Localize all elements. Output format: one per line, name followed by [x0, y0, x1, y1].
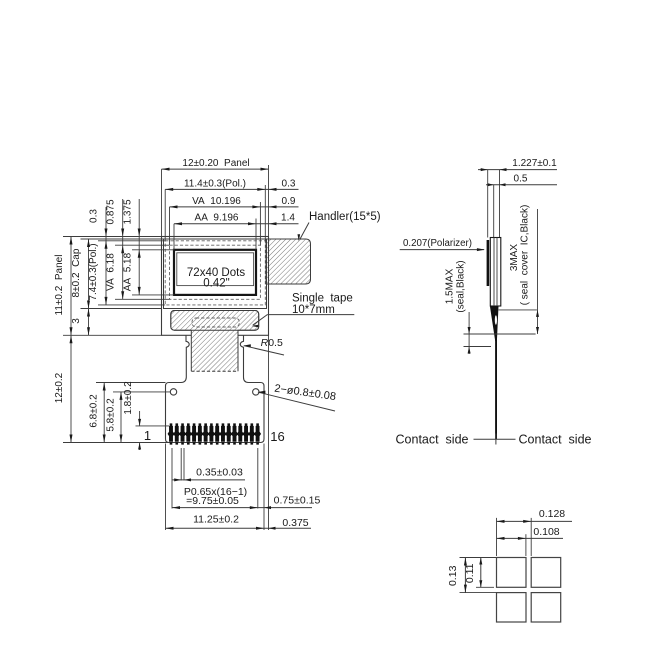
svg-text:VA 10.196: VA 10.196: [192, 196, 241, 207]
svg-text:11.25±0.2: 11.25±0.2: [193, 514, 239, 526]
svg-text:12±0.2: 12±0.2: [54, 372, 65, 403]
svg-text:5.8±0.2: 5.8±0.2: [106, 398, 117, 432]
svg-text:R0.5: R0.5: [261, 337, 283, 349]
svg-text:( seal cover IC,Black): ( seal cover IC,Black): [520, 205, 531, 306]
svg-text:0.3: 0.3: [282, 178, 296, 189]
svg-text:7.4±0.3(Pol.): 7.4±0.3(Pol.): [88, 243, 99, 300]
svg-text:11±0.2 Panel: 11±0.2 Panel: [54, 255, 65, 316]
svg-text:1.5MAX: 1.5MAX: [445, 268, 456, 304]
svg-text:0.108: 0.108: [533, 526, 559, 538]
svg-text:0.375: 0.375: [282, 517, 308, 529]
svg-text:16: 16: [270, 429, 284, 444]
svg-text:=9.75±0.05: =9.75±0.05: [186, 495, 239, 507]
svg-text:1.4: 1.4: [281, 213, 295, 224]
svg-text:3MAX: 3MAX: [509, 244, 520, 272]
svg-text:0.75±0.15: 0.75±0.15: [274, 495, 321, 507]
svg-text:(seal,Black): (seal,Black): [456, 260, 467, 312]
svg-text:Contact side: Contact side: [519, 432, 592, 446]
svg-text:0.128: 0.128: [539, 508, 565, 520]
svg-text:1.8±0.2: 1.8±0.2: [123, 381, 134, 415]
svg-text:AA 9.196: AA 9.196: [195, 213, 239, 224]
svg-text:0.875: 0.875: [106, 199, 117, 224]
svg-text:0.207(Polarizer): 0.207(Polarizer): [403, 238, 472, 249]
svg-text:0.5: 0.5: [514, 174, 528, 185]
svg-text:8±0.2 Cap: 8±0.2 Cap: [71, 248, 82, 297]
svg-text:Contact side: Contact side: [396, 432, 469, 446]
svg-text:12±0.20 Panel: 12±0.20 Panel: [182, 158, 249, 169]
svg-text:VA 6.18: VA 6.18: [106, 253, 117, 291]
svg-text:0.35±0.03: 0.35±0.03: [196, 466, 243, 478]
svg-text:3: 3: [71, 318, 82, 324]
svg-text:11.4±0.3(Pol.): 11.4±0.3(Pol.): [184, 178, 246, 189]
svg-text:1: 1: [144, 428, 151, 443]
svg-text:Handler(15*5): Handler(15*5): [309, 211, 381, 223]
svg-text:1.227±0.1: 1.227±0.1: [512, 158, 557, 169]
svg-text:0.9: 0.9: [282, 196, 296, 207]
svg-text:1.375: 1.375: [122, 199, 133, 224]
svg-text:0.13: 0.13: [447, 565, 459, 586]
svg-text:0.3: 0.3: [89, 209, 100, 223]
svg-text:0.42": 0.42": [203, 277, 229, 289]
svg-text:6.8±0.2: 6.8±0.2: [89, 394, 100, 428]
svg-text:0.11: 0.11: [464, 563, 476, 583]
svg-text:AA 5.18: AA 5.18: [123, 252, 134, 291]
svg-text:Single tape: Single tape: [292, 293, 353, 305]
